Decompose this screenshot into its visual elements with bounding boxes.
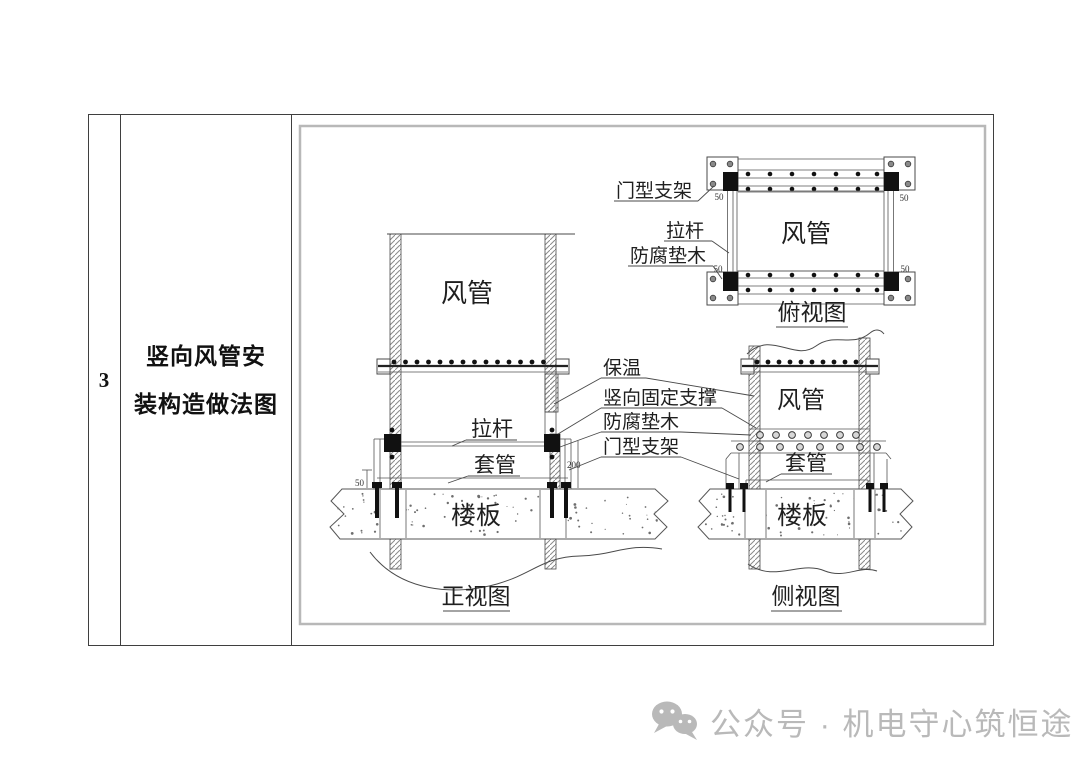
- front-slab-label: 楼板: [451, 502, 501, 530]
- front-duct-label: 风管: [441, 279, 493, 308]
- front-view-caption: 正视图: [442, 584, 511, 609]
- front-dim-50: 50: [355, 478, 365, 488]
- row-number: 3: [99, 368, 110, 393]
- top-view-duct-label: 风管: [781, 220, 831, 248]
- side-slab-label: 楼板: [777, 502, 827, 530]
- side-duct-label: 风管: [777, 387, 825, 414]
- top-dim-50-br: 50: [901, 264, 911, 274]
- callout-bracket: 门型支架: [603, 436, 679, 458]
- front-tie-rod-label: 拉杆: [471, 417, 513, 441]
- watermark: 公众号 · 机电守心筑恒途: [650, 697, 1074, 745]
- row-number-cell: 3: [88, 114, 120, 646]
- row-title-cell: 竖向风管安 装构造做法图: [121, 114, 291, 646]
- front-sleeve-label: 套管: [474, 453, 516, 477]
- side-sleeve-label: 套管: [785, 451, 827, 475]
- top-view-caption: 俯视图: [778, 300, 847, 325]
- top-label-tie-rod: 拉杆: [666, 220, 704, 242]
- row-title-line2: 装构造做法图: [134, 393, 278, 416]
- top-label-bracket: 门型支架: [616, 180, 692, 202]
- callout-insulation: 保温: [603, 357, 641, 379]
- top-label-pad: 防腐垫木: [630, 245, 706, 267]
- row-title-line1: 竖向风管安: [146, 345, 266, 368]
- callout-pad: 防腐垫木: [603, 411, 679, 433]
- cad-drawing: 50 50 50 50 门型支架 拉杆 防腐垫木 风管 俯视图: [292, 114, 995, 646]
- top-dim-50-tl: 50: [715, 192, 725, 202]
- callout-vertical-support: 竖向固定支撑: [603, 387, 717, 409]
- top-dim-50-tr: 50: [900, 193, 910, 203]
- side-view-caption: 侧视图: [772, 584, 841, 609]
- watermark-text: 公众号 · 机电守心筑恒途: [710, 699, 1074, 744]
- front-dim-200: 200: [567, 460, 581, 470]
- wechat-icon: [650, 700, 700, 742]
